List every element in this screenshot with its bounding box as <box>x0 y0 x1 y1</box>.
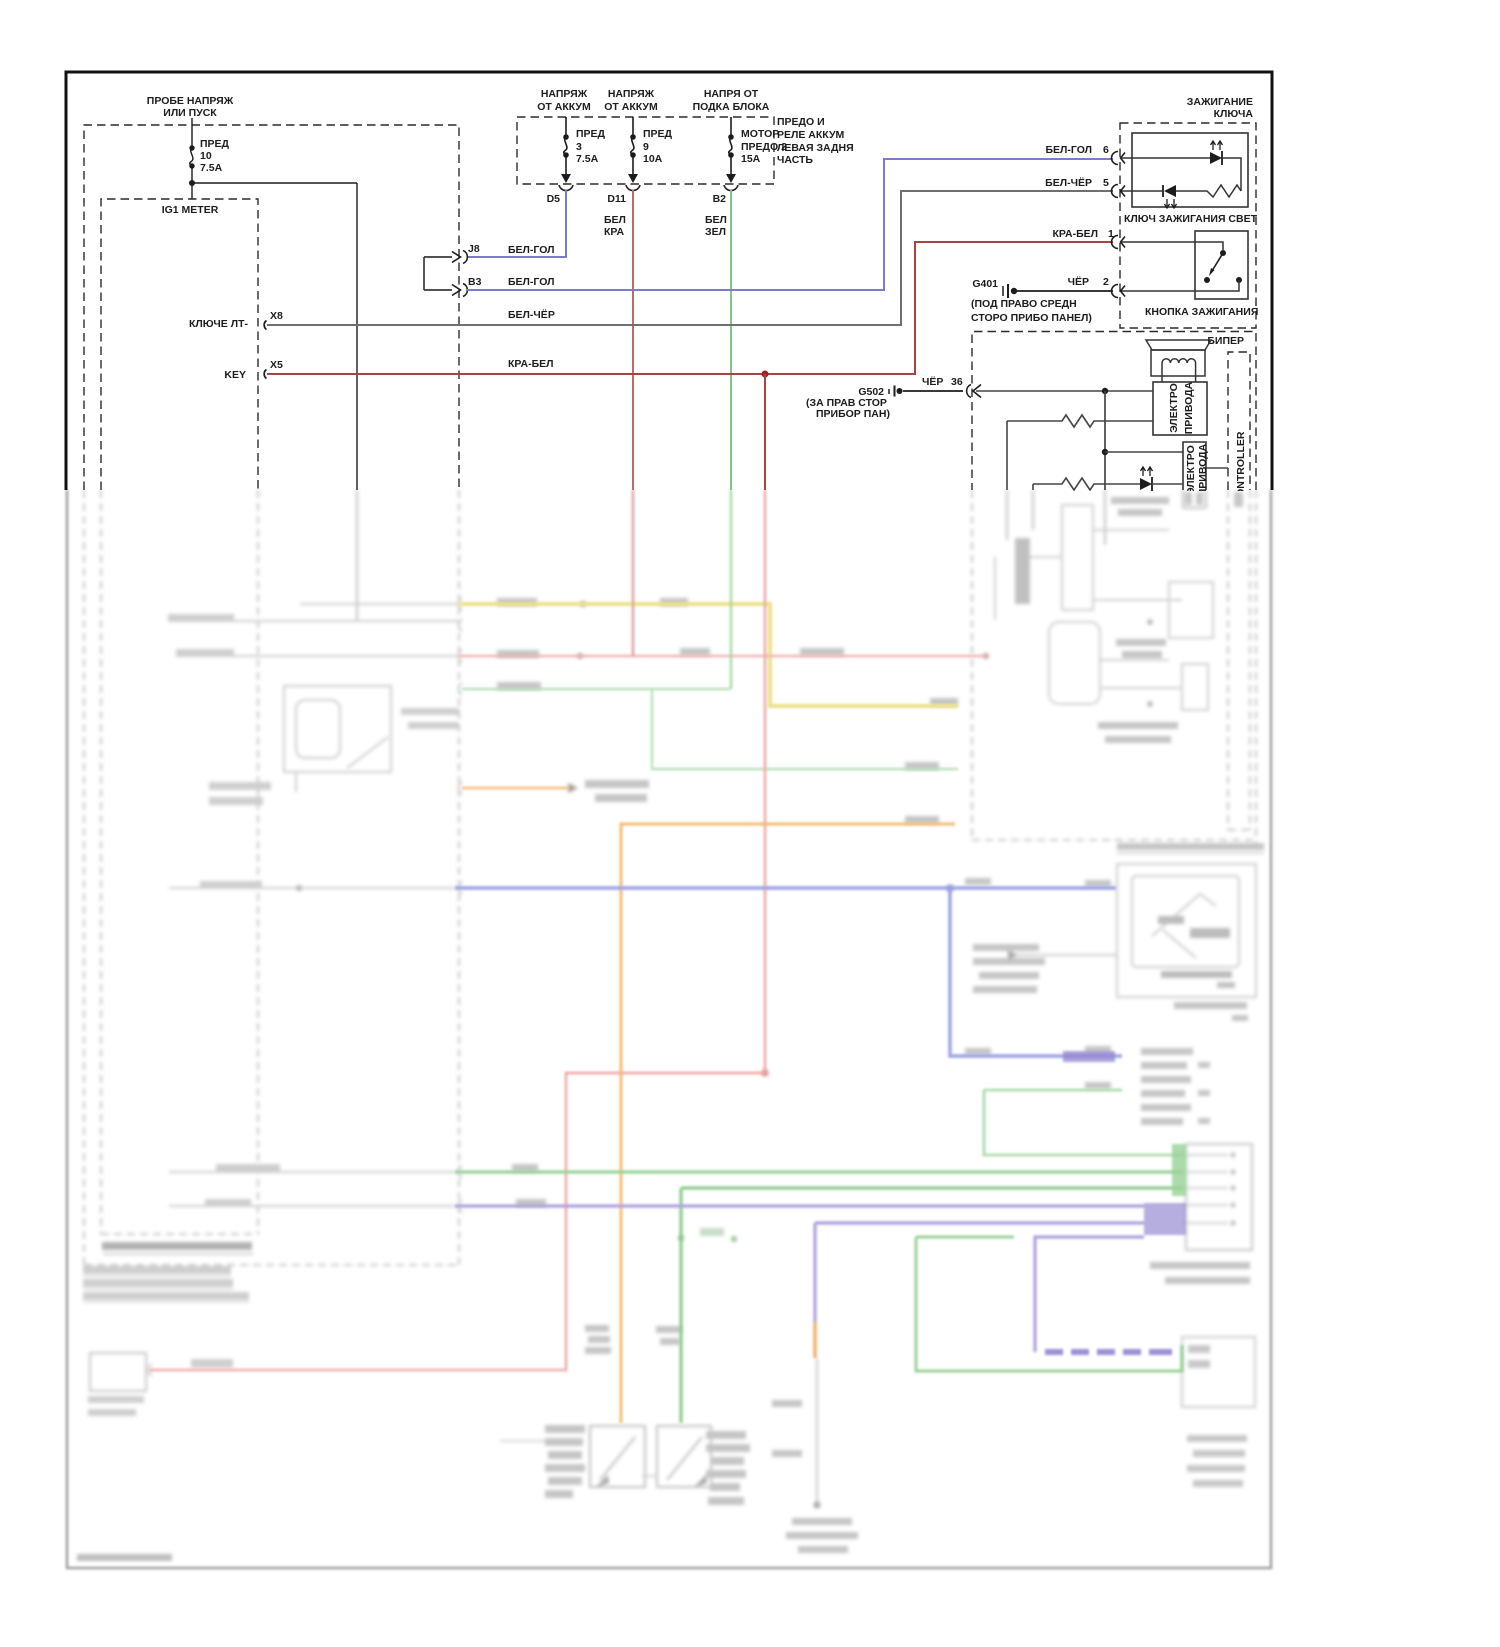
svg-text:KEY: KEY <box>224 369 246 381</box>
svg-text:КРА-БЕЛ: КРА-БЕЛ <box>1053 228 1099 240</box>
svg-text:ЗАЖИГАНИЕ: ЗАЖИГАНИЕ <box>1187 96 1253 108</box>
svg-text:ЧАСТЬ: ЧАСТЬ <box>777 154 813 166</box>
svg-text:B2: B2 <box>713 193 727 205</box>
svg-text:ПРЕД: ПРЕД <box>576 128 606 140</box>
svg-text:КРА: КРА <box>604 226 624 238</box>
svg-text:ЧЁР: ЧЁР <box>922 375 943 388</box>
svg-text:6: 6 <box>1103 144 1109 156</box>
svg-text:(ПОД ПРАВО СРЕДН: (ПОД ПРАВО СРЕДН <box>971 298 1077 310</box>
svg-text:БЕЛ: БЕЛ <box>705 214 727 226</box>
svg-text:ПРОБЕ НАПРЯЖ: ПРОБЕ НАПРЯЖ <box>147 95 234 107</box>
svg-text:9: 9 <box>643 141 649 153</box>
svg-text:БЕЛ: БЕЛ <box>604 214 626 226</box>
svg-text:5: 5 <box>1103 177 1109 189</box>
svg-text:РЕЛЕ АККУМ: РЕЛЕ АККУМ <box>777 129 844 141</box>
svg-text:БЕЛ-ГОЛ: БЕЛ-ГОЛ <box>508 276 555 288</box>
svg-text:БЕЛ-ЧЁР: БЕЛ-ЧЁР <box>1045 176 1092 189</box>
svg-text:G401: G401 <box>972 278 998 290</box>
svg-text:СТОРО ПРИБО ПАНЕЛ): СТОРО ПРИБО ПАНЕЛ) <box>971 312 1092 324</box>
svg-text:ПРИБОР ПАН): ПРИБОР ПАН) <box>816 408 890 420</box>
svg-text:15A: 15A <box>741 153 761 165</box>
svg-text:ПРИВОДА: ПРИВОДА <box>1197 443 1209 496</box>
svg-text:ЭЛЕКТРО: ЭЛЕКТРО <box>1185 445 1197 495</box>
svg-text:ОТ АККУМ: ОТ АККУМ <box>604 101 658 113</box>
svg-text:КРА-БЕЛ: КРА-БЕЛ <box>508 358 554 370</box>
svg-text:ПРЕД: ПРЕД <box>200 138 230 150</box>
svg-text:ПОДКА БЛОКА: ПОДКА БЛОКА <box>693 101 770 113</box>
svg-text:ЛЕВАЯ ЗАДНЯ: ЛЕВАЯ ЗАДНЯ <box>777 142 854 154</box>
svg-text:КНОПКА ЗАЖИГАНИЯ: КНОПКА ЗАЖИГАНИЯ <box>1145 306 1258 318</box>
svg-text:БИПЕР: БИПЕР <box>1207 335 1244 347</box>
svg-text:3: 3 <box>576 141 582 153</box>
svg-text:ПРЕДО И: ПРЕДО И <box>777 116 825 128</box>
svg-text:ПРЕД: ПРЕД <box>643 128 673 140</box>
svg-text:D5: D5 <box>547 193 561 205</box>
svg-text:X8: X8 <box>270 310 283 322</box>
svg-text:НАПРЯЖ: НАПРЯЖ <box>608 88 655 100</box>
svg-text:НАПРЯЖ: НАПРЯЖ <box>541 88 588 100</box>
svg-text:2: 2 <box>1103 276 1109 288</box>
svg-text:36: 36 <box>951 376 963 388</box>
svg-text:ЭЛЕКТРО: ЭЛЕКТРО <box>1168 383 1180 433</box>
svg-text:B3: B3 <box>468 276 482 288</box>
svg-text:БЕЛ-ГОЛ: БЕЛ-ГОЛ <box>1045 144 1092 156</box>
svg-text:КЛЮЧЕ ЛТ-: КЛЮЧЕ ЛТ- <box>189 318 249 330</box>
svg-text:ЧЁР: ЧЁР <box>1068 275 1089 288</box>
svg-text:IG1 METER: IG1 METER <box>162 204 219 216</box>
svg-text:МОТОР: МОТОР <box>741 128 779 140</box>
svg-text:ЗЕЛ: ЗЕЛ <box>705 226 726 238</box>
svg-text:ИЛИ ПУСК: ИЛИ ПУСК <box>163 107 217 119</box>
svg-text:КЛЮЧ ЗАЖИГАНИЯ СВЕТ: КЛЮЧ ЗАЖИГАНИЯ СВЕТ <box>1124 213 1258 225</box>
svg-text:7.5A: 7.5A <box>200 162 223 174</box>
svg-text:БЕЛ-ГОЛ: БЕЛ-ГОЛ <box>508 244 555 256</box>
svg-text:X5: X5 <box>270 359 283 371</box>
svg-text:10A: 10A <box>643 153 663 165</box>
svg-text:7.5A: 7.5A <box>576 153 599 165</box>
svg-text:D11: D11 <box>607 193 626 205</box>
svg-text:КЛЮЧА: КЛЮЧА <box>1214 108 1254 120</box>
svg-text:ОТ АККУМ: ОТ АККУМ <box>537 101 591 113</box>
svg-text:БЕЛ-ЧЁР: БЕЛ-ЧЁР <box>508 308 555 321</box>
svg-text:10: 10 <box>200 150 212 162</box>
svg-text:J8: J8 <box>468 243 480 255</box>
svg-text:ПРИВОДА: ПРИВОДА <box>1183 381 1195 434</box>
svg-text:НАПРЯ ОТ: НАПРЯ ОТ <box>704 88 759 100</box>
